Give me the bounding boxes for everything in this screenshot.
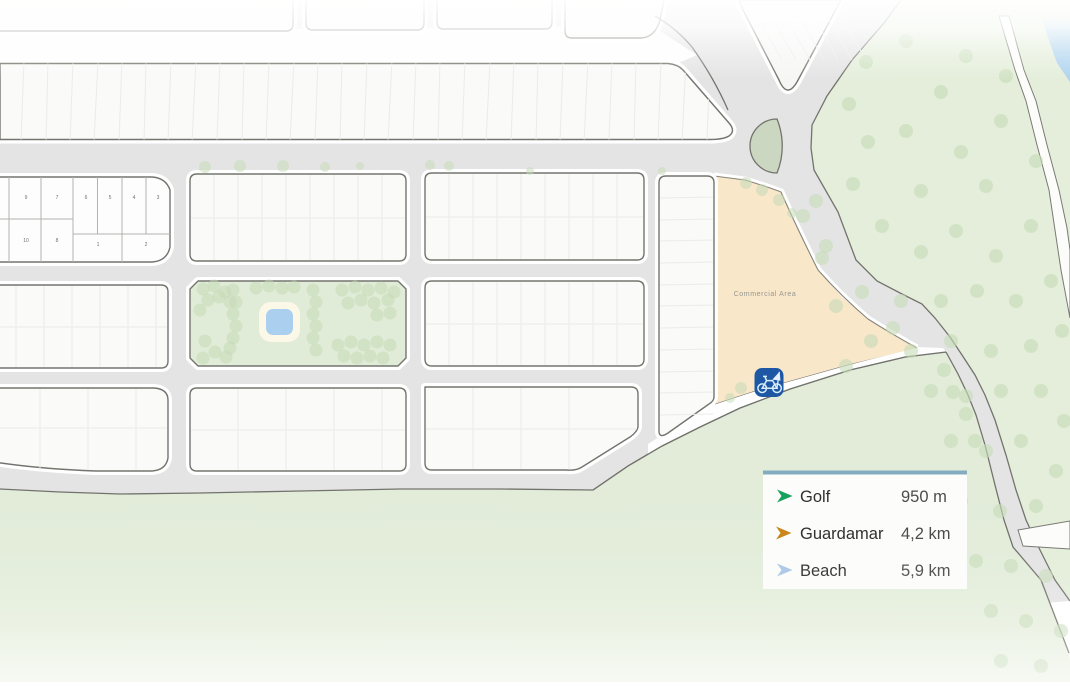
svg-text:4,2 km: 4,2 km bbox=[901, 525, 951, 543]
svg-text:950 m: 950 m bbox=[901, 488, 947, 506]
svg-text:9: 9 bbox=[25, 195, 28, 201]
svg-text:Golf: Golf bbox=[800, 488, 831, 506]
svg-text:1: 1 bbox=[97, 242, 100, 248]
svg-text:2: 2 bbox=[145, 242, 148, 248]
svg-text:Guardamar: Guardamar bbox=[800, 525, 884, 543]
svg-text:5: 5 bbox=[109, 195, 112, 201]
svg-text:3: 3 bbox=[157, 195, 160, 201]
svg-text:10: 10 bbox=[23, 238, 29, 244]
svg-text:6: 6 bbox=[85, 195, 88, 201]
svg-text:4: 4 bbox=[133, 195, 136, 201]
svg-text:8: 8 bbox=[56, 238, 59, 244]
svg-text:Commercial Area: Commercial Area bbox=[734, 291, 797, 298]
svg-text:7: 7 bbox=[56, 195, 59, 201]
